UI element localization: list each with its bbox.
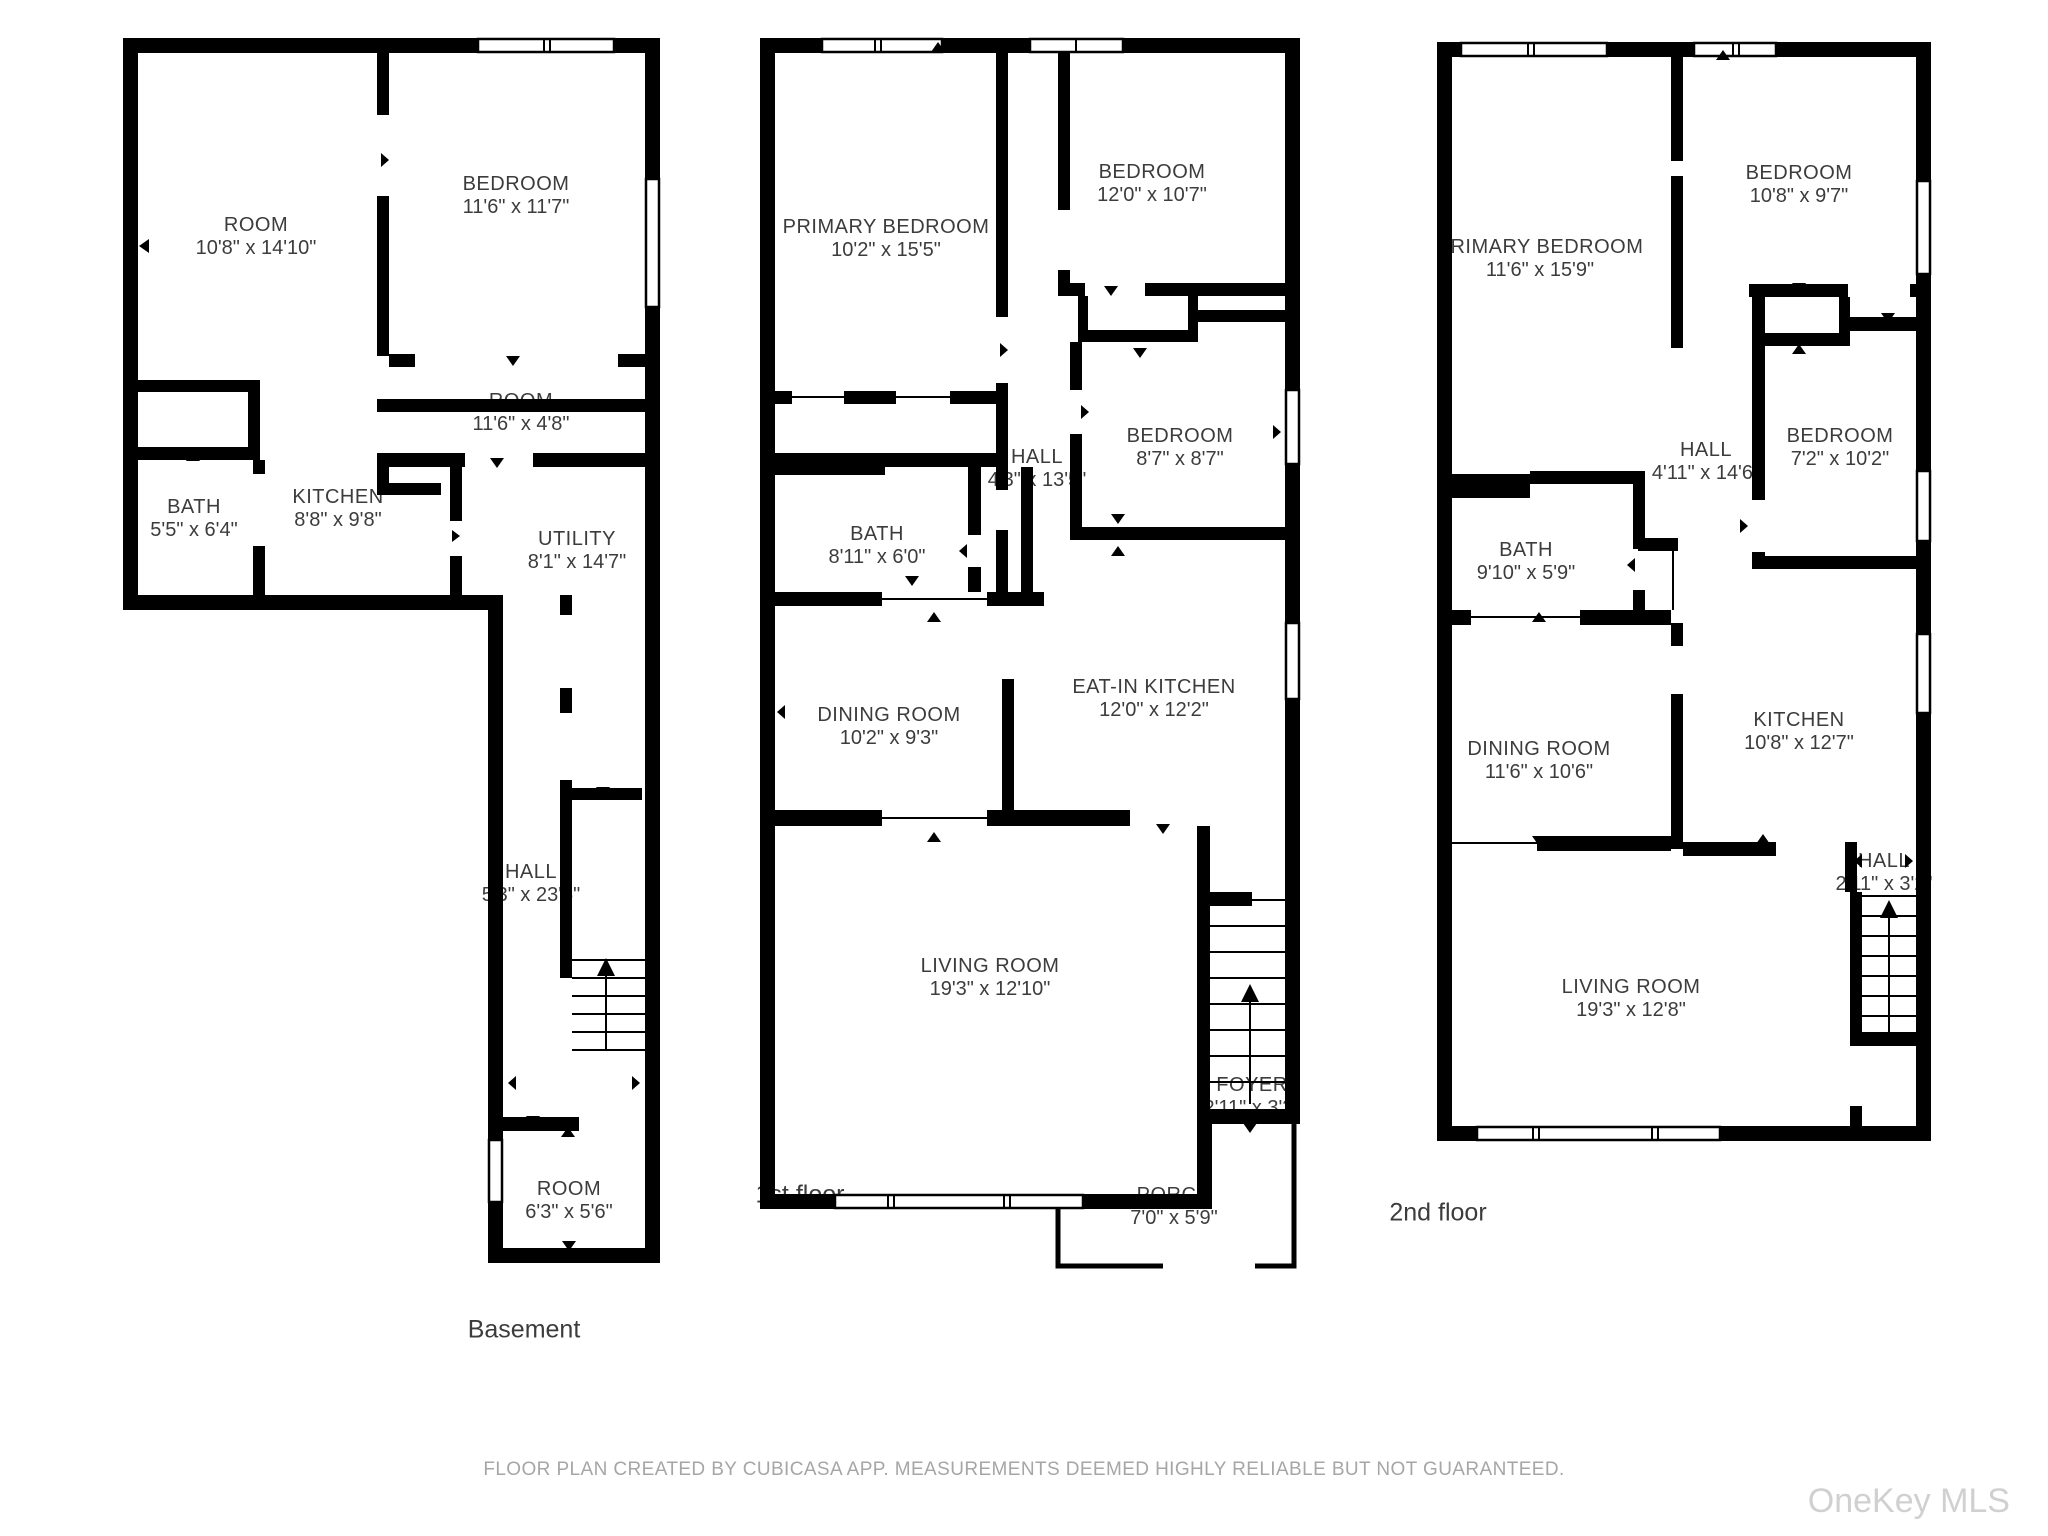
first-bath-label: BATH8'11" x 6'0" [828,523,925,569]
first-primary-bedroom-label: PRIMARY BEDROOM10'2" x 15'5" [783,216,990,262]
first-floor-title: 1st floor [756,1181,845,1210]
second-hall-label: HALL4'11" x 14'6" [1652,439,1760,485]
basement-kitchen-label: KITCHEN8'8" x 9'8" [292,486,383,532]
second-bedroom2-label: BEDROOM7'2" x 10'2" [1787,425,1894,471]
basement-room3-label: ROOM6'3" x 5'6" [525,1178,612,1224]
basement-title: Basement [468,1316,581,1345]
second-floor-title: 2nd floor [1389,1199,1486,1228]
first-bedroom-label: BEDROOM12'0" x 10'7" [1097,161,1207,207]
onekey-mls-watermark: OneKey MLS [1808,1482,2010,1521]
first-eat-in-kitchen-label: EAT-IN KITCHEN12'0" x 12'2" [1072,676,1235,722]
first-living-room-label: LIVING ROOM19'3" x 12'10" [921,955,1060,1001]
first-dining-room-label: DINING ROOM10'2" x 9'3" [817,704,960,750]
first-foyer-label: FOYER2'11" x 3'3" [1203,1074,1300,1120]
second-bedroom-label: BEDROOM10'8" x 9'7" [1746,162,1853,208]
basement-bedroom-label: BEDROOM11'6" x 11'7" [463,173,570,219]
second-bath-label: BATH9'10" x 5'9" [1477,539,1576,585]
first-porch-label: PORCH7'0" x 5'9" [1130,1184,1217,1230]
basement-utility-label: UTILITY8'1" x 14'7" [528,528,627,574]
basement-room2-label: ROOM11'6" x 4'8" [472,390,569,436]
second-hall2-label: HALL2'11" x 3'2" [1835,850,1932,896]
second-primary-bedroom-label: PRIMARY BEDROOM11'6" x 15'9" [1437,236,1644,282]
first-bedroom2-label: BEDROOM8'7" x 8'7" [1127,425,1234,471]
floorplan-page: ROOM10'8" x 14'10" BEDROOM11'6" x 11'7" … [0,0,2048,1536]
basement-room-label: ROOM10'8" x 14'10" [196,214,317,260]
first-hall-label: HALL4'3" x 13'5" [988,446,1087,492]
second-living-room-label: LIVING ROOM19'3" x 12'8" [1562,976,1701,1022]
second-dining-room-label: DINING ROOM11'6" x 10'6" [1467,738,1610,784]
basement-bath-label: BATH5'5" x 6'4" [150,496,237,542]
second-kitchen-label: KITCHEN10'8" x 12'7" [1744,709,1854,755]
basement-hall-label: HALL5'3" x 23'5" [482,861,581,907]
disclaimer-text: FLOOR PLAN CREATED BY CUBICASA APP. MEAS… [483,1459,1564,1481]
